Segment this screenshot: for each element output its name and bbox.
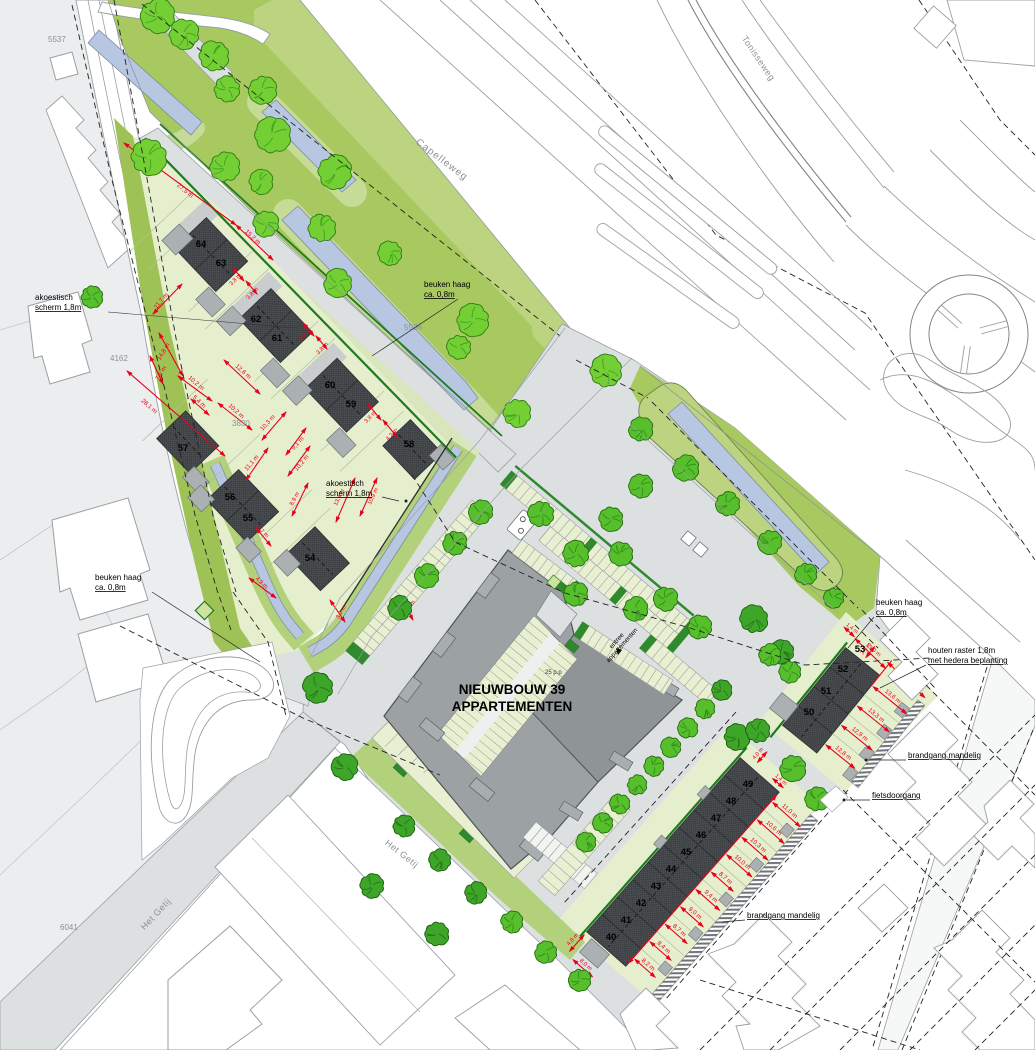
svg-text:44: 44 bbox=[666, 864, 677, 875]
svg-text:47: 47 bbox=[711, 813, 722, 824]
svg-text:48: 48 bbox=[726, 796, 737, 807]
svg-text:50: 50 bbox=[804, 707, 815, 718]
svg-text:40: 40 bbox=[606, 932, 617, 943]
svg-text:scherm 1,8m: scherm 1,8m bbox=[326, 489, 373, 498]
svg-text:beuken haag: beuken haag bbox=[876, 598, 922, 607]
svg-text:55: 55 bbox=[243, 513, 254, 524]
svg-text:NIEUWBOUW 39: NIEUWBOUW 39 bbox=[459, 682, 566, 697]
svg-text:25 p.p: 25 p.p bbox=[545, 670, 562, 676]
svg-text:60: 60 bbox=[325, 380, 336, 391]
svg-text:61: 61 bbox=[272, 333, 283, 344]
svg-text:scherm 1,8m: scherm 1,8m bbox=[35, 303, 82, 312]
svg-text:6041: 6041 bbox=[60, 923, 78, 932]
svg-text:3830: 3830 bbox=[232, 419, 250, 428]
svg-text:64: 64 bbox=[196, 239, 207, 250]
svg-text:49: 49 bbox=[743, 779, 754, 790]
svg-text:45: 45 bbox=[681, 847, 692, 858]
svg-text:APPARTEMENTEN: APPARTEMENTEN bbox=[452, 699, 573, 714]
svg-text:brandgang mandelig: brandgang mandelig bbox=[908, 751, 981, 760]
svg-text:beuken haag: beuken haag bbox=[95, 573, 141, 582]
svg-text:52: 52 bbox=[838, 664, 849, 675]
svg-text:ca. 0,8m: ca. 0,8m bbox=[876, 608, 907, 617]
svg-text:houten raster 1,8m: houten raster 1,8m bbox=[928, 646, 995, 655]
svg-text:ca. 0,8m: ca. 0,8m bbox=[424, 290, 455, 299]
svg-text:58: 58 bbox=[404, 439, 415, 450]
svg-text:ca. 0,8m: ca. 0,8m bbox=[95, 583, 126, 592]
svg-text:53: 53 bbox=[855, 644, 866, 655]
svg-text:56: 56 bbox=[225, 492, 236, 503]
svg-text:51: 51 bbox=[821, 686, 832, 697]
svg-text:akoestisch: akoestisch bbox=[35, 293, 73, 302]
svg-text:57: 57 bbox=[178, 443, 189, 454]
svg-text:5537: 5537 bbox=[48, 35, 66, 44]
svg-text:43: 43 bbox=[651, 881, 662, 892]
svg-text:41: 41 bbox=[621, 915, 632, 926]
svg-text:59: 59 bbox=[346, 399, 357, 410]
svg-text:akoestisch: akoestisch bbox=[326, 479, 364, 488]
svg-text:46: 46 bbox=[696, 830, 707, 841]
svg-text:63: 63 bbox=[216, 258, 227, 269]
svg-text:beuken haag: beuken haag bbox=[424, 280, 470, 289]
svg-text:54: 54 bbox=[305, 553, 316, 564]
svg-text:62: 62 bbox=[251, 314, 262, 325]
svg-text:met hedera beplanting: met hedera beplanting bbox=[928, 656, 1008, 665]
svg-text:fietsdoorgang: fietsdoorgang bbox=[872, 791, 920, 800]
svg-text:brandgang mandelig: brandgang mandelig bbox=[747, 911, 820, 920]
svg-text:42: 42 bbox=[636, 898, 647, 909]
svg-text:4162: 4162 bbox=[110, 354, 128, 363]
